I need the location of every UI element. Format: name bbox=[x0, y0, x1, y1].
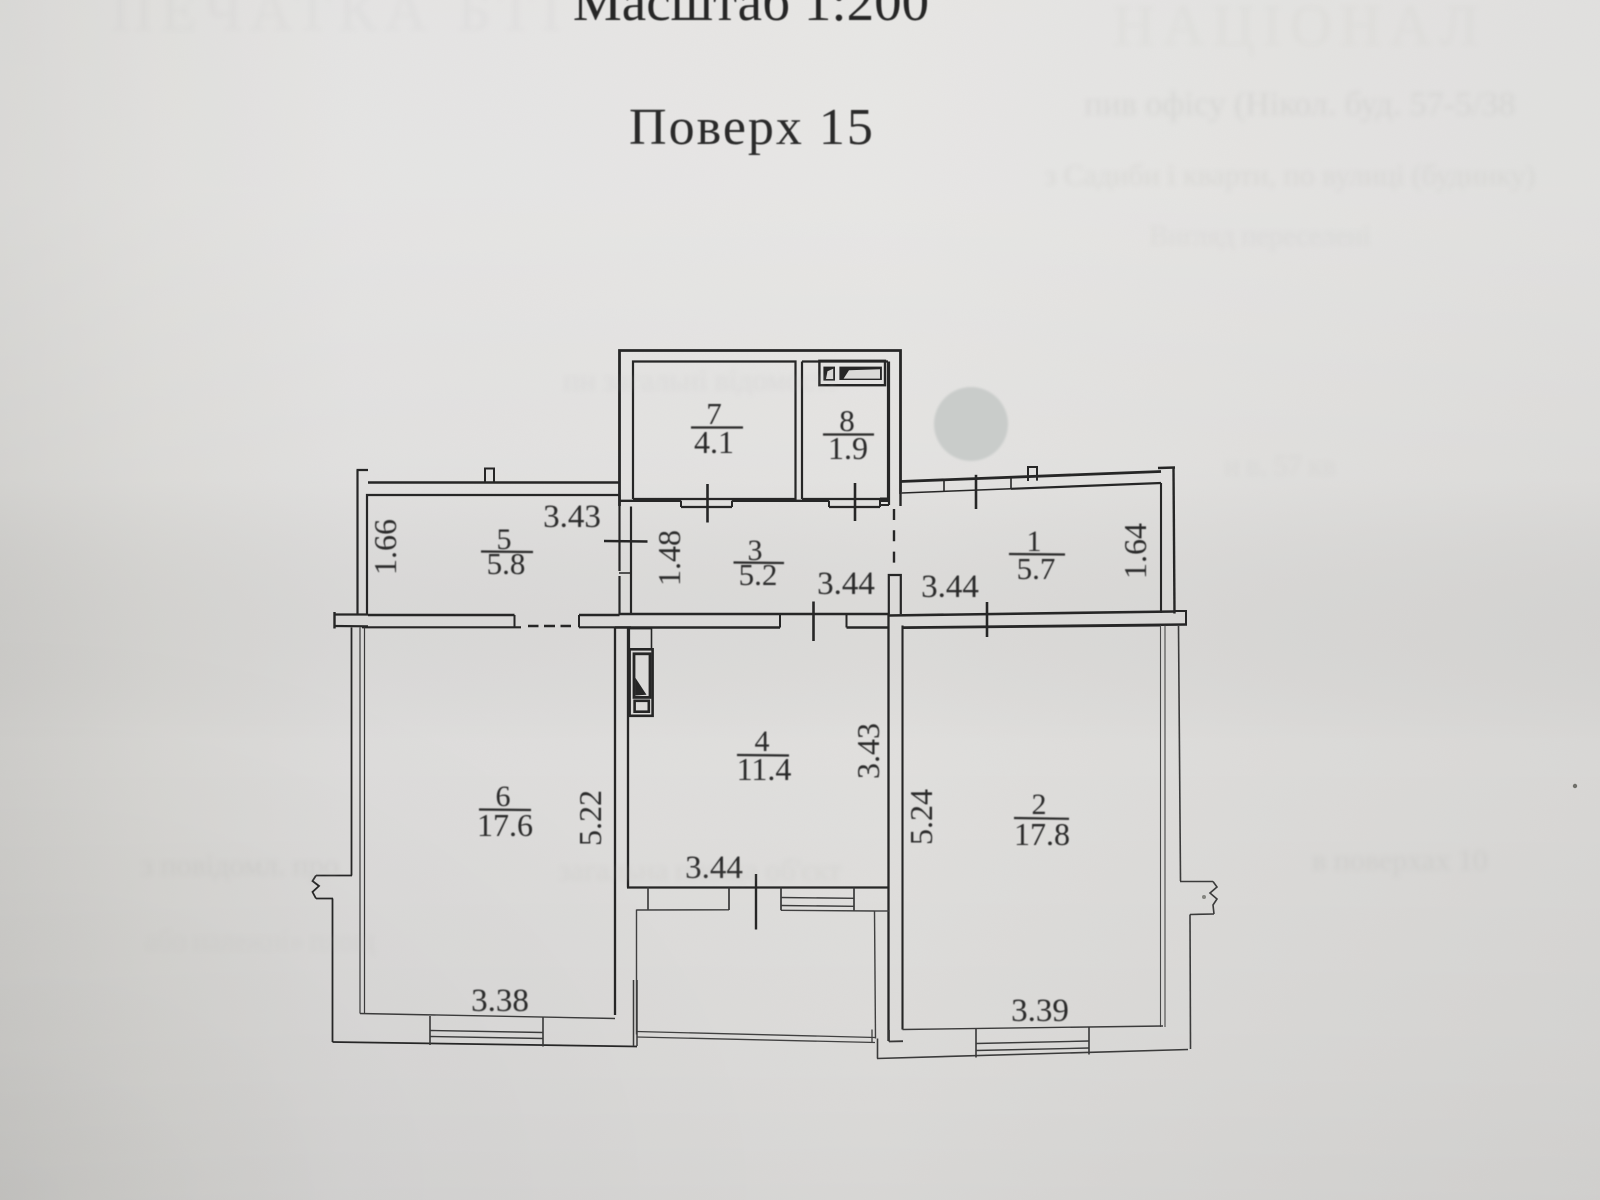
svg-text:з Садиби і кварти, по вулиці (: з Садиби і кварти, по вулиці (будинку) bbox=[1044, 159, 1535, 192]
svg-text:3.39: 3.39 bbox=[1011, 993, 1069, 1029]
svg-text:5.22: 5.22 bbox=[572, 790, 608, 846]
svg-text:5.24: 5.24 bbox=[903, 789, 939, 845]
svg-text:1.66: 1.66 bbox=[367, 519, 403, 575]
svg-text:3.43: 3.43 bbox=[850, 723, 886, 779]
svg-text:Масштаб 1:200: Масштаб 1:200 bbox=[573, 0, 929, 32]
svg-text:загальна площа об'єкт: загальна площа об'єкт bbox=[559, 854, 841, 887]
svg-text:3.44: 3.44 bbox=[817, 566, 875, 602]
svg-text:НАЦІОНАЛ: НАЦІОНАЛ bbox=[1113, 0, 1487, 58]
svg-text:17.6: 17.6 bbox=[477, 807, 533, 843]
svg-text:пн загальні відомості: пн загальні відомості bbox=[564, 364, 837, 397]
svg-text:3.38: 3.38 bbox=[471, 983, 529, 1019]
svg-text:1.9: 1.9 bbox=[828, 430, 868, 466]
svg-text:або належні» площ: або належні» площ bbox=[145, 926, 374, 957]
svg-text:и в. 57 кв: и в. 57 кв bbox=[1224, 451, 1335, 482]
svg-text:1.64: 1.64 bbox=[1117, 523, 1153, 579]
svg-text:в поверхах 10: в поверхах 10 bbox=[1312, 844, 1487, 877]
svg-text:ПЕЧАТКА БТІ: ПЕЧАТКА БТІ bbox=[111, 0, 569, 43]
svg-text:5.7: 5.7 bbox=[1017, 551, 1056, 586]
svg-text:Вигляд переселені: Вигляд переселені bbox=[1150, 221, 1371, 252]
svg-text:3.44: 3.44 bbox=[921, 569, 979, 605]
svg-text:17.8: 17.8 bbox=[1014, 816, 1070, 852]
svg-text:1.48: 1.48 bbox=[651, 530, 687, 586]
svg-text:пив офісу (Нікол. буд. 57-5/38: пив офісу (Нікол. буд. 57-5/38 bbox=[1084, 86, 1515, 123]
svg-text:з повідомл. про: з повідомл. про bbox=[141, 849, 339, 882]
svg-text:5.8: 5.8 bbox=[487, 546, 526, 581]
svg-text:11.4: 11.4 bbox=[737, 751, 792, 787]
svg-text:3.43: 3.43 bbox=[543, 499, 601, 535]
svg-text:Поверх 15: Поверх 15 bbox=[629, 99, 875, 156]
svg-text:4.1: 4.1 bbox=[694, 424, 734, 460]
svg-text:5.2: 5.2 bbox=[739, 557, 778, 592]
